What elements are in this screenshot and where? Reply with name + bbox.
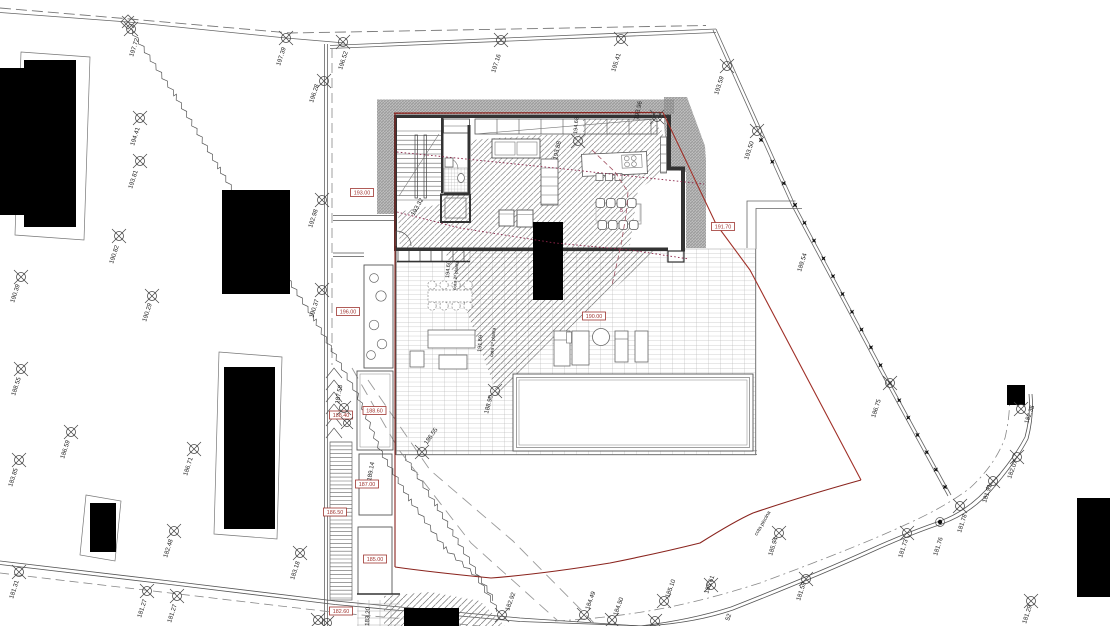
svg-text:191.70: 191.70 xyxy=(715,225,732,231)
svg-text:188.60: 188.60 xyxy=(366,409,383,415)
svg-text:193.00: 193.00 xyxy=(354,191,371,197)
svg-text:188.40: 188.40 xyxy=(333,413,350,419)
svg-text:5: 5 xyxy=(620,208,623,214)
svg-text:187.00: 187.00 xyxy=(359,482,376,488)
svg-text:190.00: 190.00 xyxy=(586,314,603,320)
svg-text:185.00: 185.00 xyxy=(367,557,384,563)
svg-text:183.20: 183.20 xyxy=(364,606,372,626)
svg-text:196.00: 196.00 xyxy=(340,310,357,316)
svg-text:182.60: 182.60 xyxy=(333,609,350,615)
svg-text:186.50: 186.50 xyxy=(327,510,344,516)
